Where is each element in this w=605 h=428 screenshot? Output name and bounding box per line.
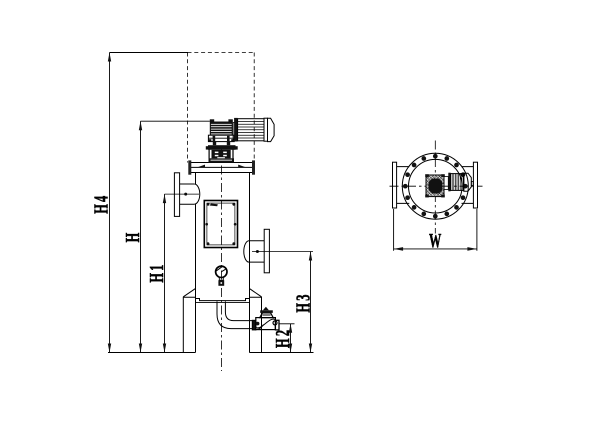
- svg-text:H2: H2: [271, 328, 294, 348]
- svg-text:H: H: [121, 233, 144, 243]
- svg-text:H4: H4: [90, 194, 113, 214]
- svg-text:H1: H1: [145, 263, 168, 283]
- svg-text:W: W: [429, 229, 441, 252]
- svg-text:H3: H3: [292, 292, 315, 312]
